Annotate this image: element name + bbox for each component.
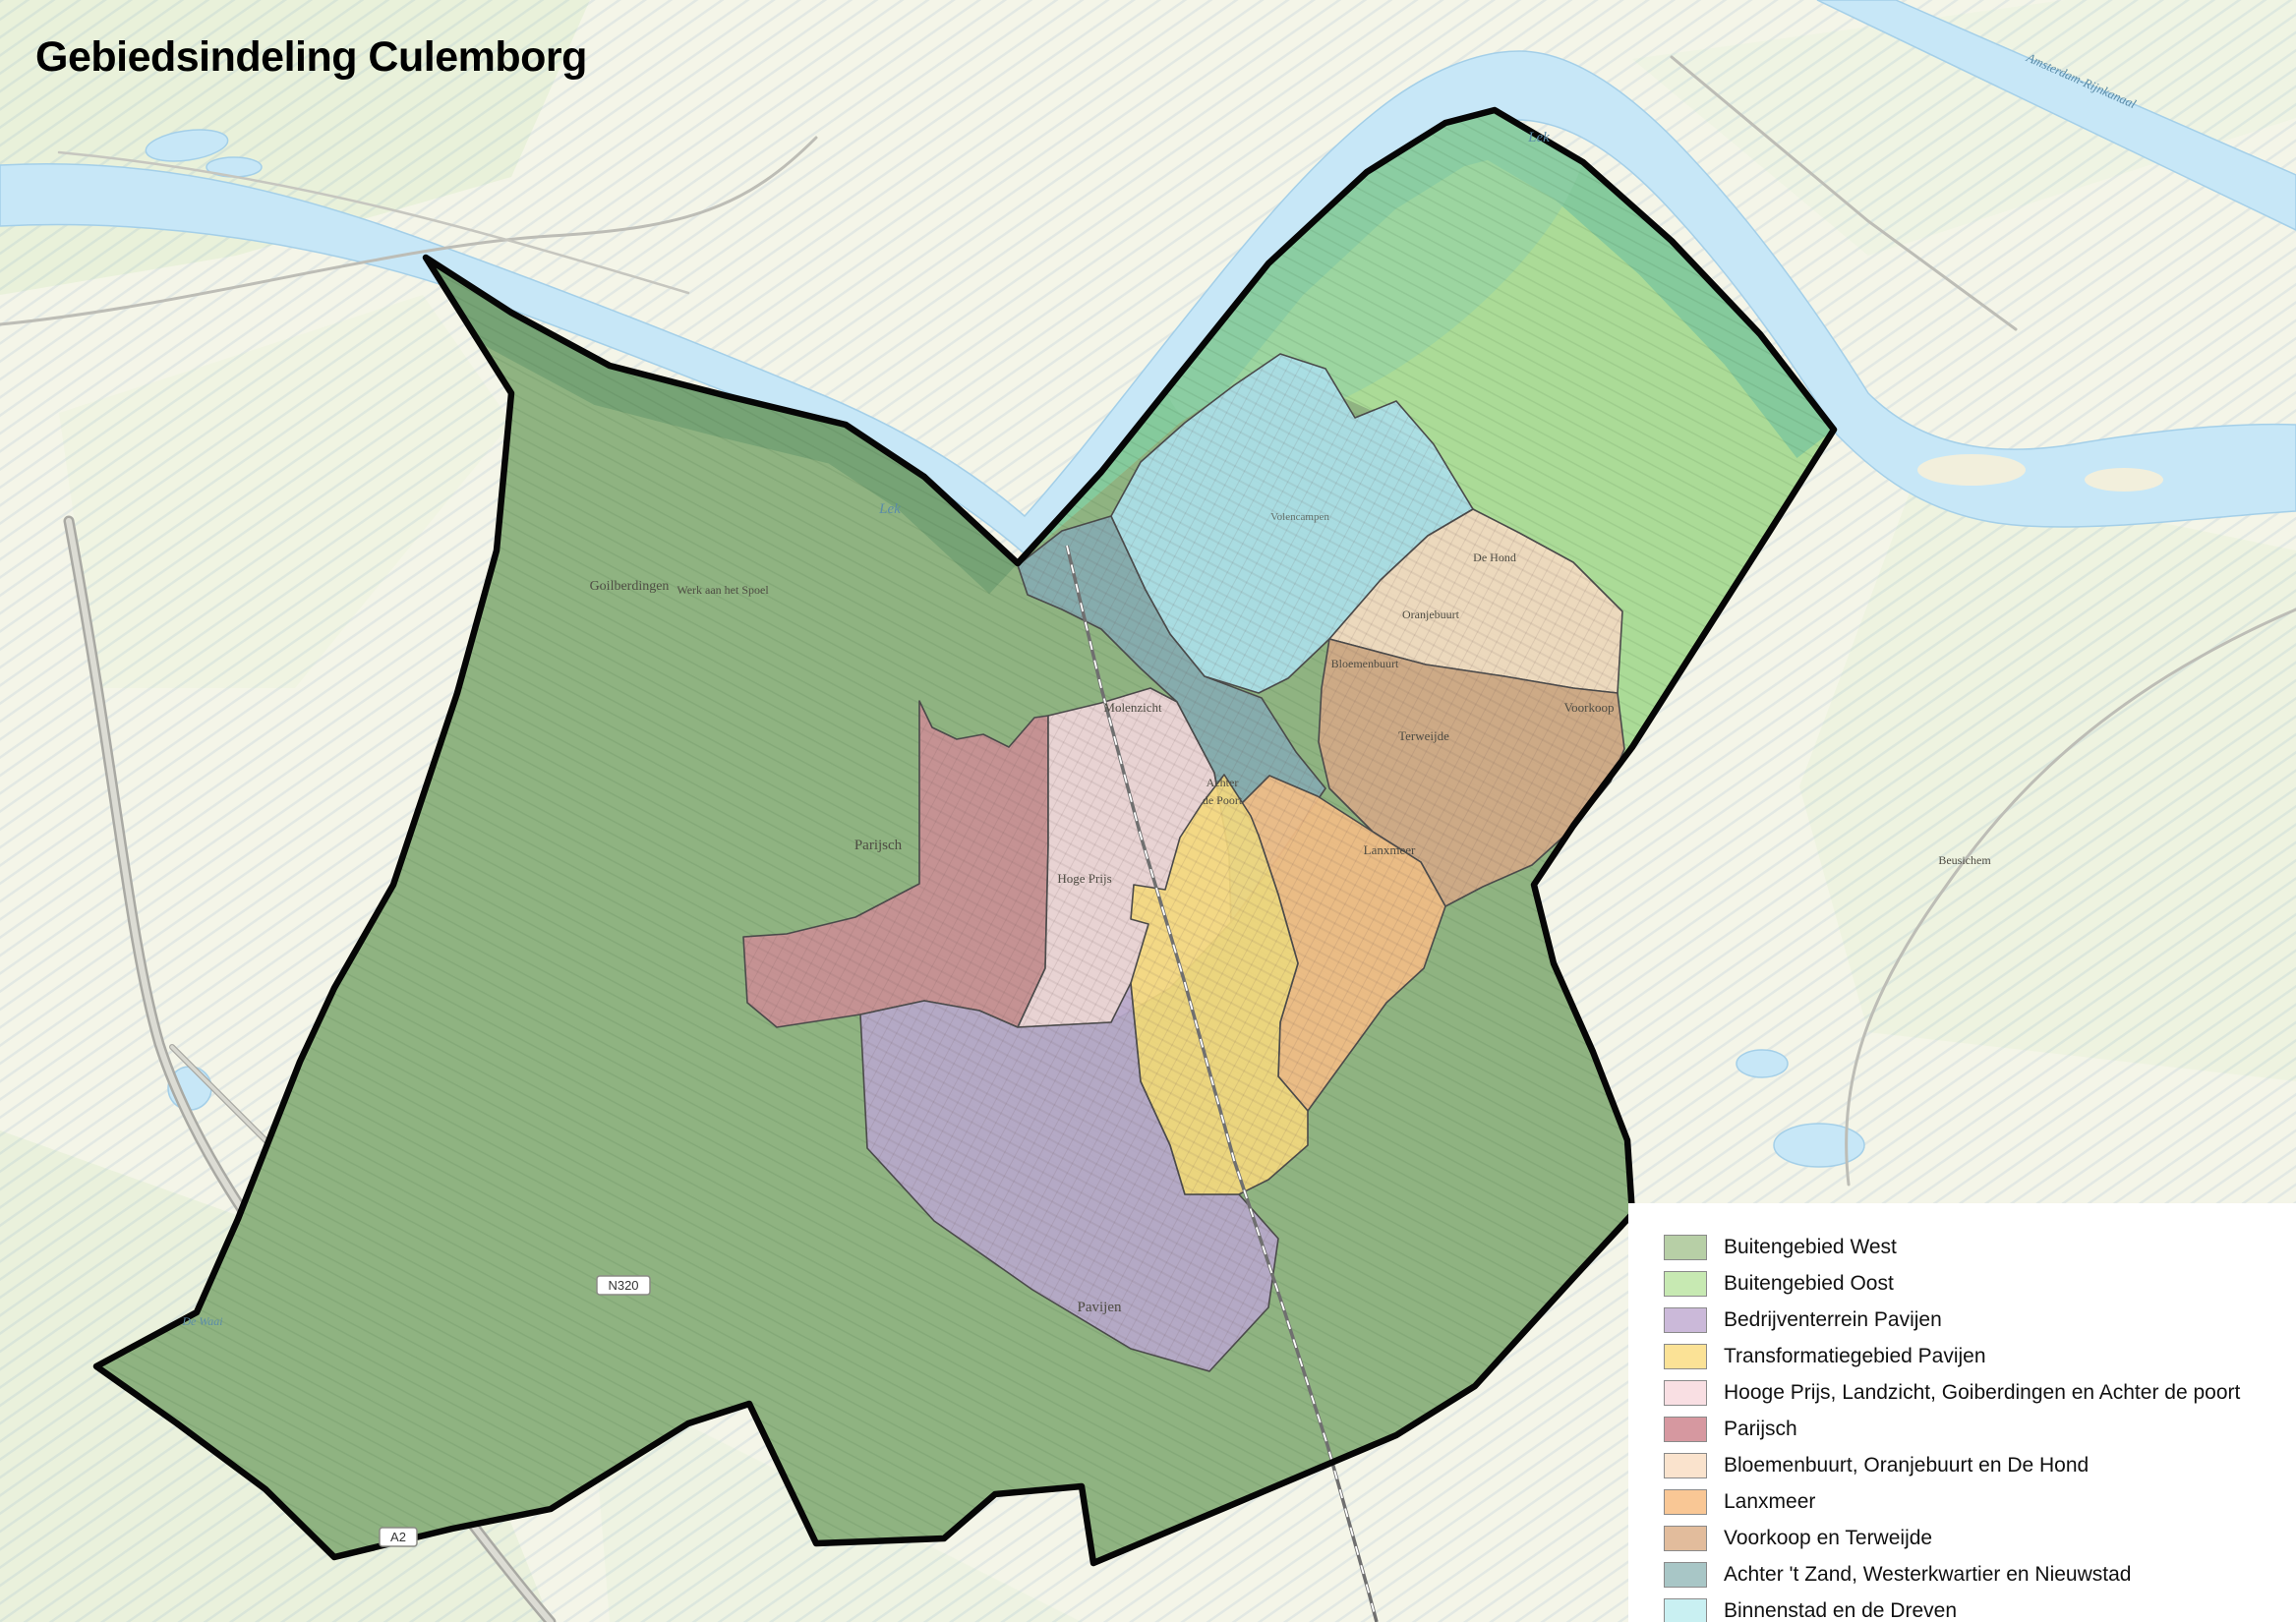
legend-panel: Buitengebied West Buitengebied Oost Bedr… (1628, 1203, 2296, 1622)
place-label: Goilberdingen (590, 579, 670, 594)
legend-item-buitengebied-west: Buitengebied West (1664, 1229, 2296, 1265)
district-label: Molenzicht (1103, 700, 1162, 715)
legend-item-binnenstad: Binnenstad en de Dreven (1664, 1593, 2296, 1622)
district-label: Bloemenbuurt (1331, 657, 1399, 670)
lake (1774, 1124, 1864, 1167)
legend-item-bedrijventerrein-pavijen: Bedrijventerrein Pavijen (1664, 1302, 2296, 1338)
district-label: Oranjebuurt (1402, 608, 1460, 621)
legend-label: Binnenstad en de Dreven (1724, 1599, 1957, 1622)
legend-label: Achter 't Zand, Westerkwartier en Nieuws… (1724, 1563, 2131, 1587)
legend-swatch (1664, 1271, 1707, 1297)
place-label: Beusichem (1938, 853, 1991, 867)
map-title: Gebiedsindeling Culemborg (35, 33, 587, 82)
district-label: Terweijde (1398, 728, 1449, 743)
district-label: Achter (1207, 776, 1239, 789)
place-label: Werk aan het Spoel (677, 583, 769, 597)
legend-swatch (1664, 1235, 1707, 1260)
legend-swatch (1664, 1598, 1707, 1622)
district-label: De Hond (1473, 550, 1516, 564)
legend-swatch (1664, 1562, 1707, 1588)
legend-label: Buitengebied Oost (1724, 1272, 1894, 1296)
legend-swatch (1664, 1489, 1707, 1515)
legend-item-bloemenbuurt: Bloemenbuurt, Oranjebuurt en De Hond (1664, 1447, 2296, 1483)
legend-label: Hooge Prijs, Landzicht, Goiberdingen en … (1724, 1381, 2240, 1405)
lake (1737, 1050, 1788, 1077)
legend-swatch (1664, 1526, 1707, 1551)
legend-item-lanxmeer: Lanxmeer (1664, 1483, 2296, 1520)
district-label: Parijsch (854, 838, 903, 853)
legend-swatch (1664, 1453, 1707, 1478)
legend-item-transformatiegebied-pavijen: Transformatiegebied Pavijen (1664, 1338, 2296, 1374)
legend-label: Lanxmeer (1724, 1490, 1815, 1514)
district-label: Voorkoop (1563, 700, 1614, 715)
legend-label: Voorkoop en Terweijde (1724, 1527, 1932, 1550)
road-shield-label: A2 (390, 1530, 406, 1544)
water-label: De Waai (181, 1314, 222, 1328)
river-island (1917, 454, 2026, 486)
river-label: Lek (878, 501, 901, 517)
district-label: Lanxmeer (1364, 842, 1416, 857)
legend-item-achter-t-zand: Achter 't Zand, Westerkwartier en Nieuws… (1664, 1556, 2296, 1593)
legend-label: Transformatiegebied Pavijen (1724, 1345, 1986, 1368)
legend-label: Bedrijventerrein Pavijen (1724, 1308, 1942, 1332)
legend-swatch (1664, 1344, 1707, 1369)
river-island (2085, 468, 2163, 492)
district-label: de Poort (1203, 793, 1243, 807)
district-label: Volencampen (1270, 511, 1329, 523)
map-viewport: Goilberdingen Werk aan het Spoel Lek Lek… (0, 0, 2296, 1622)
legend-swatch (1664, 1380, 1707, 1406)
legend-item-parijsch: Parijsch (1664, 1411, 2296, 1447)
legend-swatch (1664, 1417, 1707, 1442)
legend-label: Parijsch (1724, 1418, 1797, 1441)
legend-item-buitengebied-oost: Buitengebied Oost (1664, 1265, 2296, 1302)
legend-item-hooge-prijs: Hooge Prijs, Landzicht, Goiberdingen en … (1664, 1374, 2296, 1411)
road-shield-label: N320 (608, 1278, 638, 1293)
district-label: Hoge Prijs (1057, 871, 1111, 886)
legend-label: Bloemenbuurt, Oranjebuurt en De Hond (1724, 1454, 2089, 1477)
legend-label: Buitengebied West (1724, 1236, 1897, 1259)
legend-swatch (1664, 1307, 1707, 1333)
river-label: Lek (1527, 130, 1550, 145)
district-label: Pavijen (1078, 1300, 1122, 1315)
legend-item-voorkoop-terweijde: Voorkoop en Terweijde (1664, 1520, 2296, 1556)
